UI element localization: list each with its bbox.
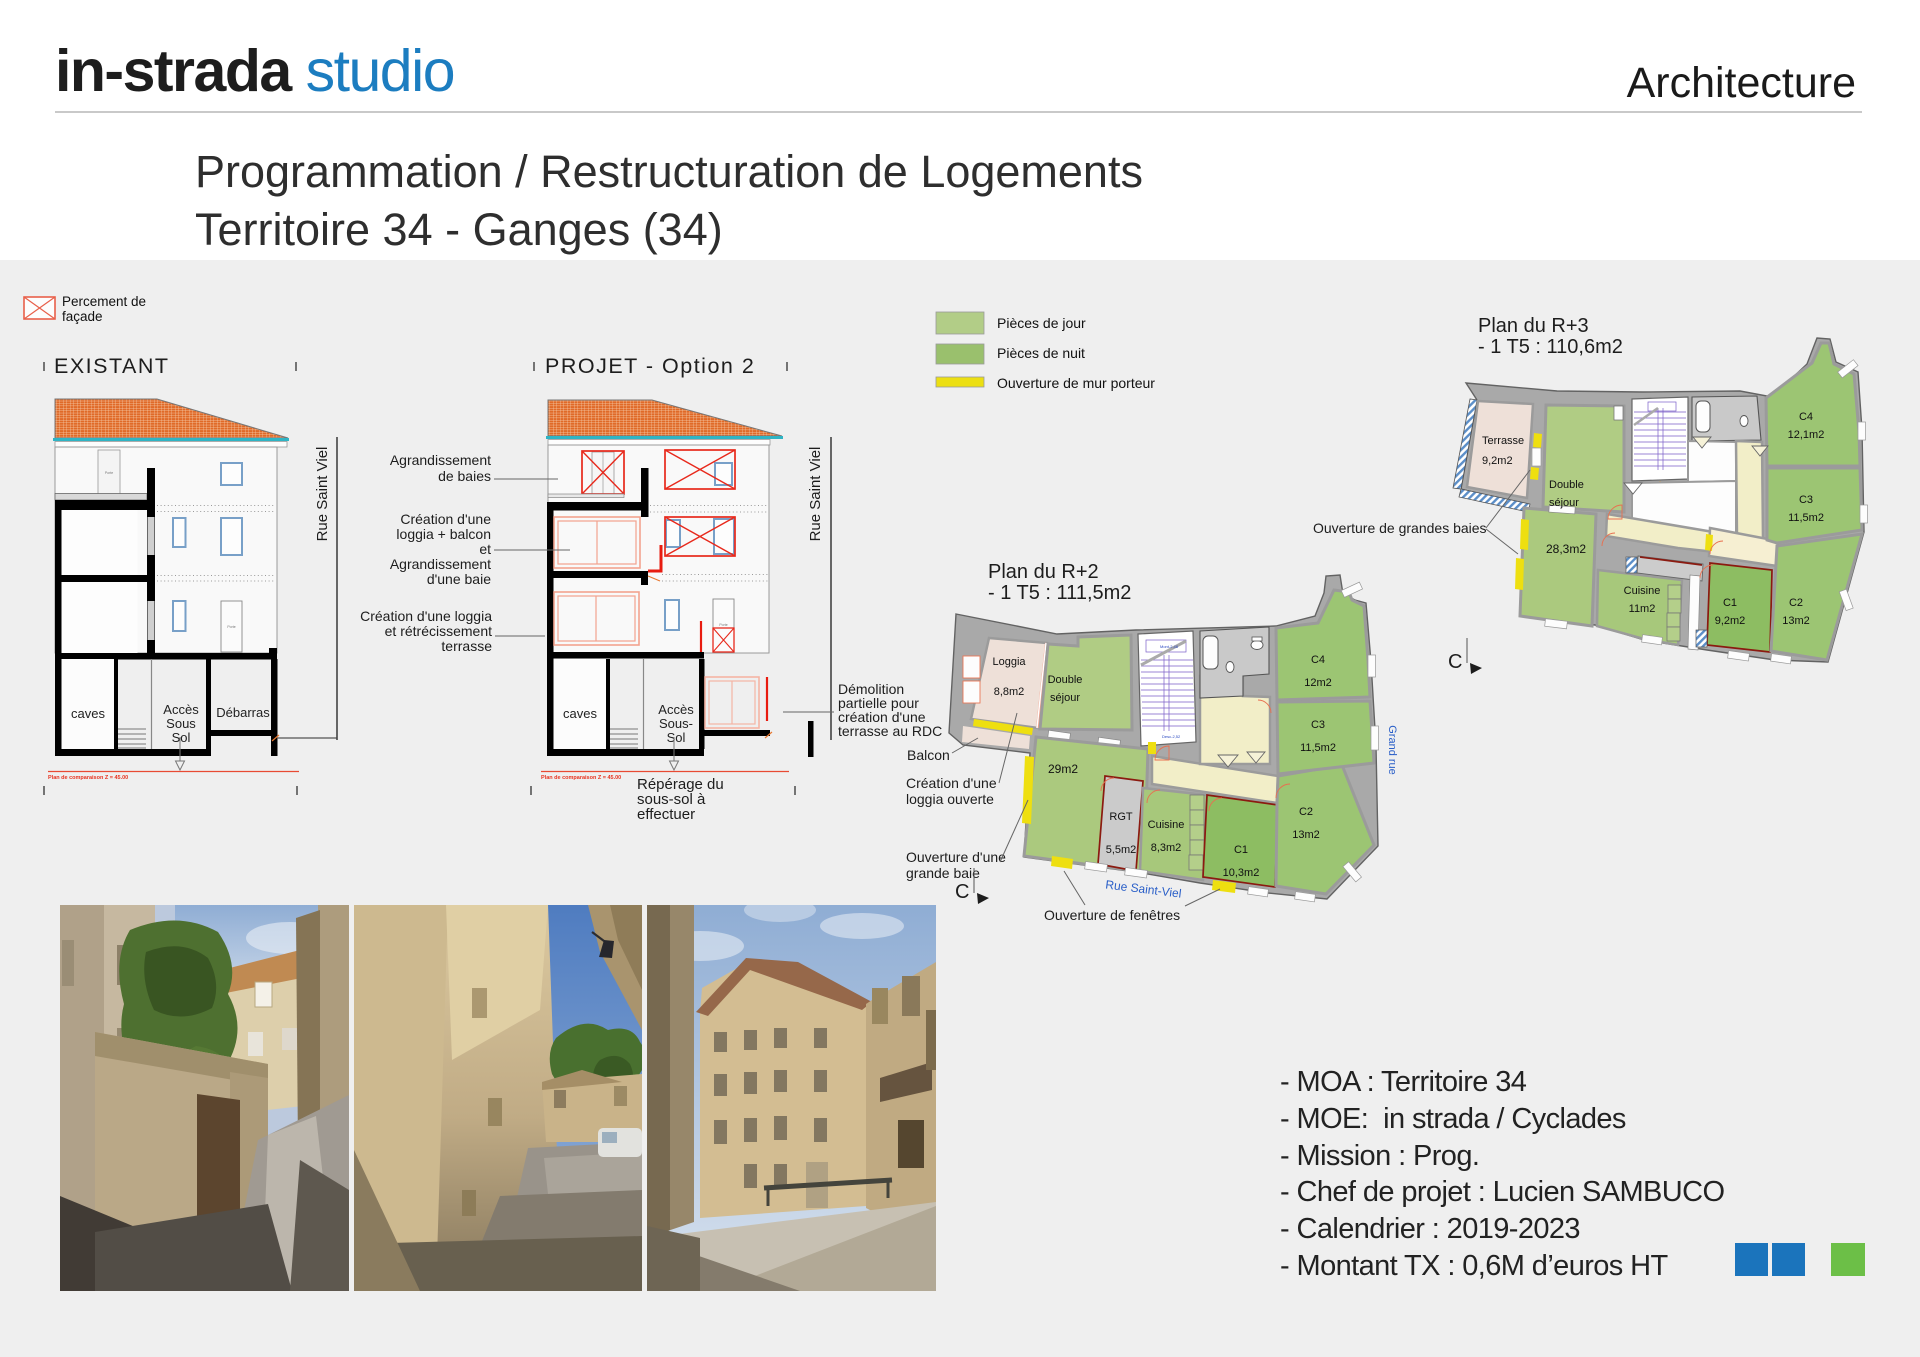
svg-text:C: C (955, 881, 969, 903)
svg-text:11,5m2: 11,5m2 (1300, 742, 1336, 754)
svg-text:11m2: 11m2 (1629, 603, 1656, 615)
svg-text:Rue Saint Viel: Rue Saint Viel (314, 447, 331, 542)
svg-text:28,3m2: 28,3m2 (1546, 542, 1586, 556)
svg-text:et rétrécissement: et rétrécissement (385, 623, 492, 639)
svg-text:Plan du R+3: Plan du R+3 (1478, 315, 1589, 337)
svg-text:Plan de comparaison Z = 45.00: Plan de comparaison Z = 45.00 (541, 775, 621, 781)
svg-text:C: C (1448, 651, 1462, 673)
svg-text:RGT: RGT (1109, 811, 1133, 823)
svg-text:Sous: Sous (166, 716, 196, 731)
svg-text:Débarras: Débarras (216, 705, 270, 720)
svg-text:et: et (479, 541, 491, 557)
svg-text:Ouverture d'une: Ouverture d'une (906, 849, 1006, 865)
svg-text:PROJET - Option 2: PROJET - Option 2 (545, 354, 755, 378)
svg-text:Mont-2,48: Mont-2,48 (1160, 644, 1179, 649)
svg-text:Pièces de nuit: Pièces de nuit (997, 345, 1085, 361)
svg-text:12,1m2: 12,1m2 (1788, 429, 1825, 441)
svg-text:effectuer: effectuer (637, 806, 695, 823)
svg-text:Porte: Porte (719, 623, 727, 627)
svg-text:Ouverture de grandes baies: Ouverture de grandes baies (1313, 520, 1487, 536)
svg-text:Création d'une: Création d'une (400, 511, 491, 527)
svg-text:29m2: 29m2 (1048, 762, 1078, 776)
svg-text:Loggia: Loggia (992, 656, 1026, 668)
svg-text:séjour: séjour (1549, 497, 1579, 509)
svg-text:Cuisine: Cuisine (1148, 819, 1185, 831)
svg-text:9,2m2: 9,2m2 (1715, 615, 1746, 627)
svg-text:Ouverture de fenêtres: Ouverture de fenêtres (1044, 907, 1180, 923)
svg-text:Création d'une: Création d'une (906, 775, 997, 791)
svg-text:terrasse: terrasse (441, 638, 492, 654)
svg-text:12m2: 12m2 (1304, 677, 1332, 689)
svg-text:Porte: Porte (227, 625, 235, 629)
svg-text:façade: façade (62, 309, 103, 324)
svg-text:caves: caves (71, 706, 105, 721)
svg-text:9,2m2: 9,2m2 (1482, 455, 1513, 467)
svg-text:Pièces de jour: Pièces de jour (997, 315, 1086, 331)
svg-text:Plan du R+2: Plan du R+2 (988, 561, 1099, 583)
svg-text:caves: caves (563, 706, 597, 721)
svg-text:C4: C4 (1311, 654, 1325, 666)
svg-text:8,8m2: 8,8m2 (994, 686, 1025, 698)
svg-text:Balcon: Balcon (907, 747, 950, 763)
svg-text:- 1 T5 : 110,6m2: - 1 T5 : 110,6m2 (1478, 336, 1623, 358)
svg-text:Grand rue: Grand rue (1386, 725, 1398, 775)
svg-text:Agrandissement: Agrandissement (390, 556, 491, 572)
svg-text:Création d'une loggia: Création d'une loggia (360, 608, 492, 624)
svg-text:C2: C2 (1789, 597, 1803, 609)
svg-text:C3: C3 (1311, 719, 1325, 731)
svg-text:C3: C3 (1799, 494, 1813, 506)
svg-text:5,5m2: 5,5m2 (1106, 844, 1137, 856)
svg-text:13m2: 13m2 (1292, 829, 1320, 841)
svg-text:Percement de: Percement de (62, 294, 146, 309)
svg-text:Double: Double (1048, 674, 1083, 686)
svg-text:Agrandissement: Agrandissement (390, 452, 491, 468)
svg-text:10,3m2: 10,3m2 (1223, 867, 1260, 879)
svg-text:Double: Double (1549, 479, 1584, 491)
svg-text:d'une baie: d'une baie (427, 571, 491, 587)
svg-text:séjour: séjour (1050, 692, 1080, 704)
svg-text:Accès: Accès (163, 702, 199, 717)
svg-text:terrasse au RDC: terrasse au RDC (838, 723, 942, 739)
svg-text:Rue Saint Viel: Rue Saint Viel (807, 447, 824, 542)
svg-text:Plan de comparaison Z = 45.00: Plan de comparaison Z = 45.00 (48, 775, 128, 781)
svg-text:11,5m2: 11,5m2 (1788, 512, 1824, 524)
svg-text:Cuisine: Cuisine (1624, 585, 1661, 597)
svg-text:Accès: Accès (658, 702, 694, 717)
svg-text:C4: C4 (1799, 411, 1813, 423)
svg-text:grande baie: grande baie (906, 865, 980, 881)
svg-text:EXISTANT: EXISTANT (54, 354, 170, 378)
svg-text:- 1 T5 : 111,5m2: - 1 T5 : 111,5m2 (988, 582, 1131, 604)
svg-text:Porte: Porte (105, 471, 113, 475)
svg-text:Sous-: Sous- (659, 716, 693, 731)
svg-text:13m2: 13m2 (1782, 615, 1810, 627)
svg-text:Ouverture de mur porteur: Ouverture de mur porteur (997, 375, 1155, 391)
svg-text:Rue Saint-Viel: Rue Saint-Viel (1105, 877, 1183, 900)
svg-text:Sol: Sol (667, 730, 686, 745)
svg-text:C1: C1 (1723, 597, 1737, 609)
svg-text:loggia ouverte: loggia ouverte (906, 791, 994, 807)
svg-text:8,3m2: 8,3m2 (1151, 842, 1182, 854)
svg-text:C2: C2 (1299, 806, 1313, 818)
svg-text:Desc-2,52: Desc-2,52 (1162, 734, 1181, 739)
svg-text:Terrasse: Terrasse (1482, 435, 1524, 447)
svg-text:de baies: de baies (438, 468, 491, 484)
svg-text:C1: C1 (1234, 844, 1248, 856)
svg-text:loggia + balcon: loggia + balcon (396, 526, 491, 542)
svg-text:Sol: Sol (172, 730, 191, 745)
